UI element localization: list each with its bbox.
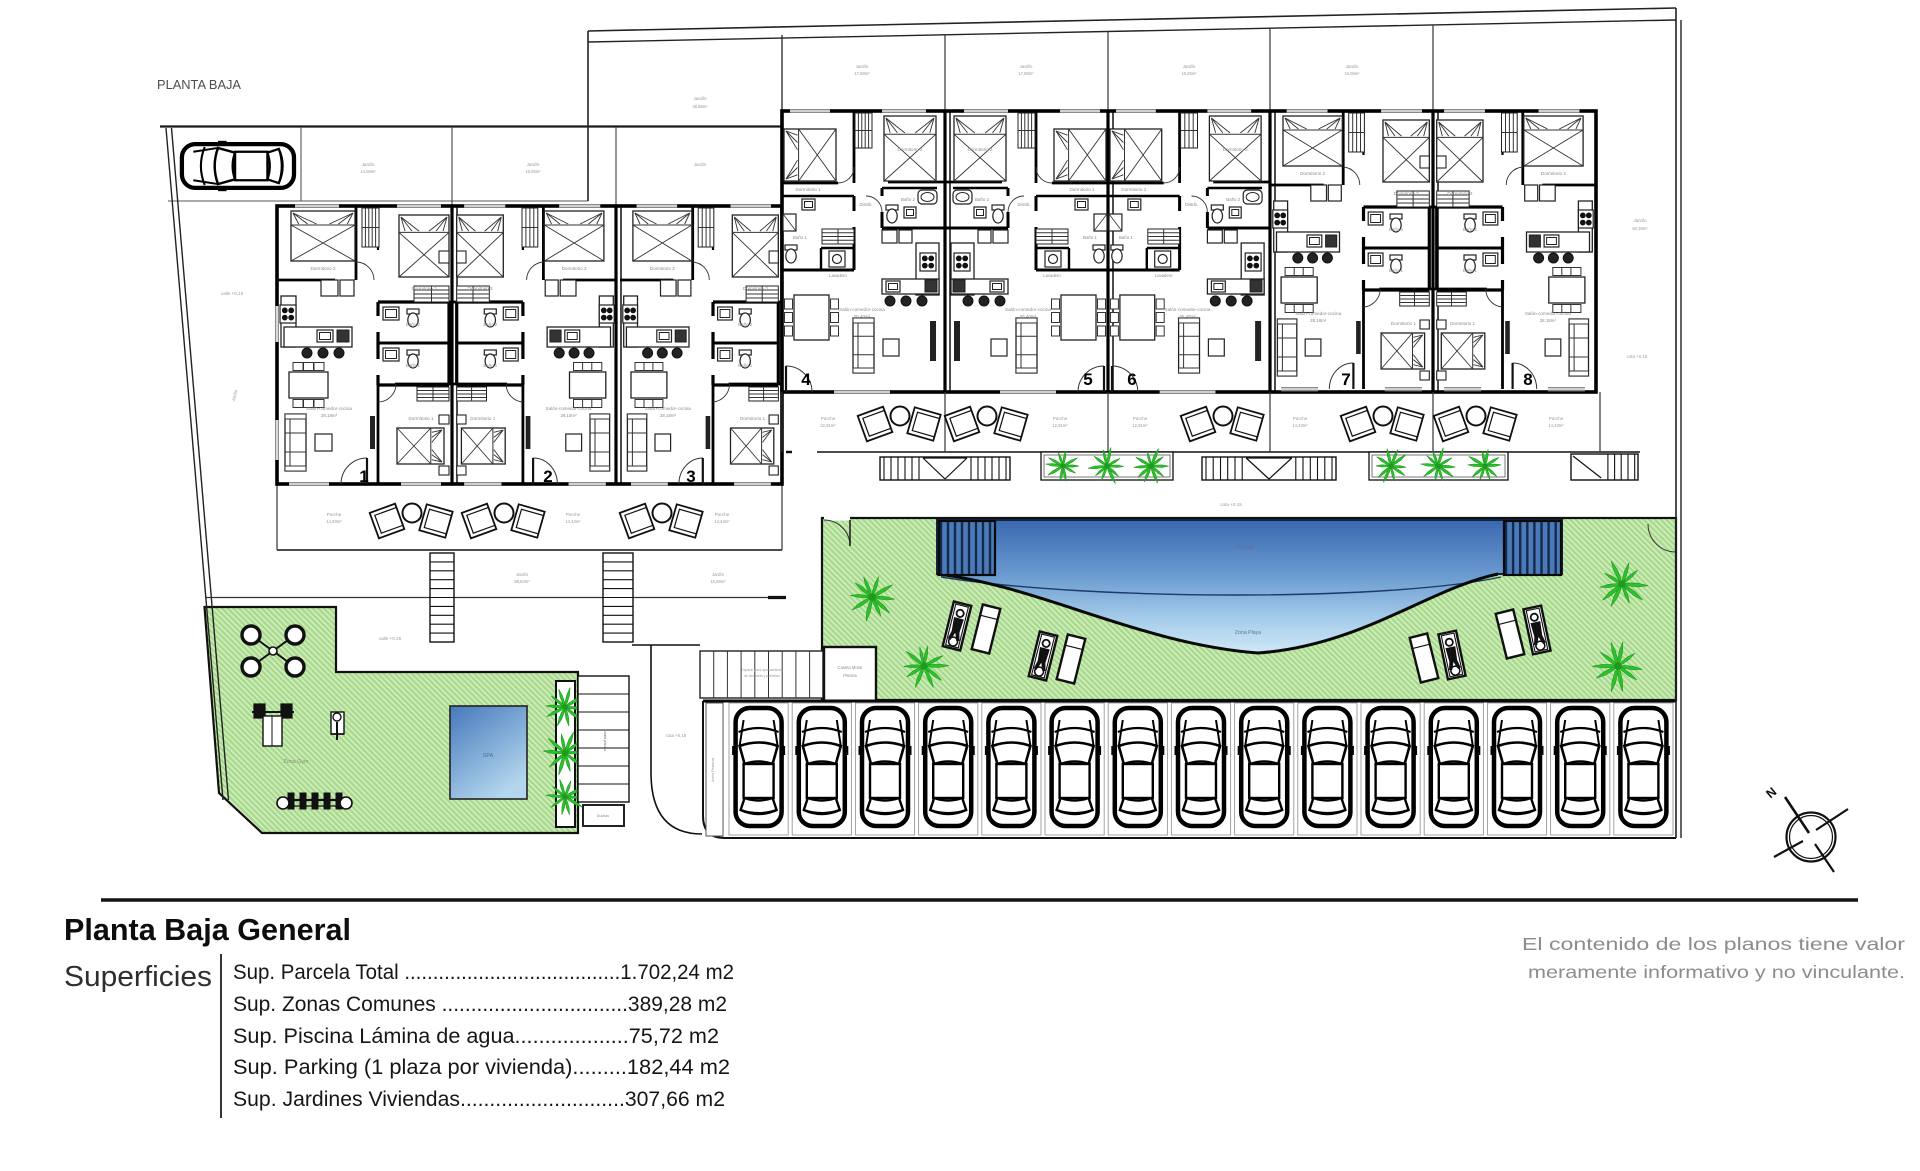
svg-text:Distrib.: Distrib.	[1185, 202, 1198, 207]
svg-text:Salón-comedor-cocina: Salón-comedor-cocina	[546, 406, 592, 411]
svg-text:Caseta Motor: Caseta Motor	[837, 665, 863, 670]
svg-text:17,88m²: 17,88m²	[854, 71, 870, 76]
svg-text:Dormitorio 1: Dormitorio 1	[1450, 321, 1475, 326]
svg-text:calle +0,15: calle +0,15	[379, 636, 402, 641]
svg-text:Sup. Zonas Comunes ...........: Sup. Zonas Comunes .....................…	[233, 992, 727, 1016]
svg-text:Dormitorio 3: Dormitorio 3	[743, 286, 768, 291]
svg-text:Dormitorio 1: Dormitorio 1	[408, 416, 433, 421]
svg-text:Porche: Porche	[327, 512, 342, 517]
svg-text:Baño 1: Baño 1	[1119, 235, 1133, 240]
svg-text:Piscina: Piscina	[843, 673, 857, 678]
svg-text:SPA: SPA	[483, 753, 494, 759]
svg-text:Dormitorio 1: Dormitorio 1	[1391, 321, 1416, 326]
svg-text:Dormitorio 3: Dormitorio 3	[1394, 191, 1419, 196]
svg-text:60,36m²: 60,36m²	[1632, 226, 1648, 231]
svg-text:Jardín: Jardín	[362, 162, 375, 167]
svg-text:16,06m²: 16,06m²	[1181, 71, 1197, 76]
svg-text:14,06m²: 14,06m²	[360, 169, 376, 174]
svg-text:22,91m²: 22,91m²	[820, 423, 836, 428]
svg-text:Salón-comedor-cocina: Salón-comedor-cocina	[645, 406, 691, 411]
svg-text:Dormitorio 1: Dormitorio 1	[740, 416, 765, 421]
svg-text:4: 4	[801, 370, 811, 389]
svg-text:Salón-comedor-cocina: Salón-comedor-cocina	[1525, 311, 1571, 316]
svg-text:Porche: Porche	[1053, 416, 1068, 421]
svg-text:Baño 1: Baño 1	[1389, 268, 1403, 273]
svg-text:Dormitorio 2: Dormitorio 2	[1300, 171, 1325, 176]
svg-text:12,91m²: 12,91m²	[1132, 423, 1148, 428]
svg-text:Baño 2: Baño 2	[738, 322, 752, 327]
svg-text:28,18m²: 28,18m²	[1310, 318, 1327, 323]
svg-text:Baño 1: Baño 1	[793, 235, 807, 240]
svg-text:16,06m²: 16,06m²	[1344, 71, 1360, 76]
svg-text:El contenido de los planos tie: El contenido de los planos tiene valor	[1522, 934, 1905, 954]
svg-text:17,88m²: 17,88m²	[1018, 71, 1034, 76]
svg-text:Dormitorio 1: Dormitorio 1	[470, 416, 495, 421]
svg-text:14,43m²: 14,43m²	[714, 519, 730, 524]
svg-text:Jardín: Jardín	[856, 64, 869, 69]
svg-text:Dormitorio 2: Dormitorio 2	[562, 266, 587, 271]
svg-text:Dormitorio 2: Dormitorio 2	[310, 266, 335, 271]
svg-text:cota +0,15: cota +0,15	[666, 733, 687, 738]
svg-text:Porche: Porche	[715, 512, 730, 517]
svg-text:Dormitorio 2: Dormitorio 2	[897, 147, 922, 152]
svg-text:Duchas: Duchas	[597, 814, 609, 818]
svg-text:cota +0,15: cota +0,15	[1627, 354, 1648, 359]
svg-text:Zona Playa: Zona Playa	[1235, 630, 1261, 636]
svg-text:Planta Baja General: Planta Baja General	[64, 912, 351, 947]
svg-text:2: 2	[543, 467, 552, 486]
svg-text:Lavadero: Lavadero	[1043, 273, 1061, 278]
svg-text:14,43m²: 14,43m²	[1548, 423, 1564, 428]
svg-text:Distrib.: Distrib.	[1017, 202, 1030, 207]
svg-text:Dormitorio 1: Dormitorio 1	[795, 187, 820, 192]
svg-text:Piscina: Piscina	[1237, 545, 1254, 551]
svg-text:28,18m²: 28,18m²	[560, 413, 577, 418]
svg-text:Porche: Porche	[1549, 416, 1564, 421]
svg-text:Porche: Porche	[1293, 416, 1308, 421]
svg-text:3: 3	[686, 467, 695, 486]
svg-text:55,40m²: 55,40m²	[854, 314, 871, 319]
svg-text:Sup. Piscina Lámina de agua...: Sup. Piscina Lámina de agua.............…	[233, 1024, 719, 1048]
svg-text:Superficies: Superficies	[64, 961, 212, 993]
svg-text:Baño 1: Baño 1	[483, 363, 497, 368]
svg-text:Salón-comedor-cocina: Salón-comedor-cocina	[839, 307, 885, 312]
svg-text:Lavadero: Lavadero	[829, 273, 847, 278]
svg-text:Jardín: Jardín	[527, 162, 540, 167]
svg-text:Lavadero: Lavadero	[1155, 273, 1173, 278]
svg-text:88,84m²: 88,84m²	[514, 579, 530, 584]
svg-text:Baño 1: Baño 1	[738, 363, 752, 368]
svg-text:Dormitorio 1: Dormitorio 1	[1069, 187, 1094, 192]
svg-text:Distrib.: Distrib.	[859, 202, 872, 207]
svg-text:Dormitorio 2: Dormitorio 2	[1541, 171, 1566, 176]
svg-text:Baño 1: Baño 1	[1463, 268, 1477, 273]
svg-text:Dormitorio 1: Dormitorio 1	[1121, 187, 1146, 192]
svg-text:Baño 2: Baño 2	[1226, 197, 1240, 202]
svg-text:Jardín: Jardín	[693, 96, 707, 102]
svg-text:14,43m²: 14,43m²	[1292, 423, 1308, 428]
svg-text:Salón-comedor-cocina: Salón-comedor-cocina	[306, 406, 352, 411]
svg-text:16,06m²: 16,06m²	[525, 169, 541, 174]
svg-text:Dormitorio 2: Dormitorio 2	[650, 266, 675, 271]
svg-text:Sup. Parking (1 plaza por vivi: Sup. Parking (1 plaza por vivienda).....…	[233, 1055, 730, 1079]
svg-text:Jardín: Jardín	[694, 162, 707, 167]
svg-text:Zona Gym: Zona Gym	[283, 759, 309, 765]
svg-text:Baño 1: Baño 1	[1083, 235, 1097, 240]
svg-text:Baño 2: Baño 2	[1389, 227, 1403, 232]
svg-text:meramente informativo y no vin: meramente informativo y no vinculante.	[1528, 962, 1905, 982]
svg-text:Baño 2: Baño 2	[901, 197, 915, 202]
svg-text:Salón-comedor-cocina: Salón-comedor-cocina	[1165, 307, 1211, 312]
svg-text:PLANTA BAJA: PLANTA BAJA	[157, 77, 241, 92]
svg-text:Dormitorio 3: Dormitorio 3	[411, 286, 436, 291]
svg-text:Dormitorio 2: Dormitorio 2	[1223, 147, 1248, 152]
svg-text:Porche: Porche	[821, 416, 836, 421]
svg-text:cota +0,15: cota +0,15	[1220, 502, 1242, 507]
svg-text:Jardín: Jardín	[516, 572, 529, 577]
svg-text:Jardín: Jardín	[1020, 64, 1033, 69]
svg-text:7: 7	[1341, 370, 1350, 389]
svg-text:subida piscina: subida piscina	[603, 729, 607, 751]
svg-text:Dormitorio 3: Dormitorio 3	[1447, 191, 1472, 196]
svg-text:28,18m²: 28,18m²	[1540, 318, 1557, 323]
svg-text:Dormitorio 2: Dormitorio 2	[967, 147, 992, 152]
svg-text:de bicicletas y patinetes: de bicicletas y patinetes	[744, 674, 780, 678]
svg-text:Baño 2: Baño 2	[406, 322, 420, 327]
svg-text:14,43m²: 14,43m²	[565, 519, 581, 524]
svg-text:Salón-comedor-cocina: Salón-comedor-cocina	[1005, 307, 1051, 312]
svg-text:calle +0,15: calle +0,15	[221, 291, 244, 296]
svg-text:Baño 2: Baño 2	[483, 322, 497, 327]
svg-text:Baño 2: Baño 2	[1463, 227, 1477, 232]
svg-text:Dormitorio 3: Dormitorio 3	[467, 286, 492, 291]
svg-text:55,40m²: 55,40m²	[1179, 314, 1196, 319]
svg-text:Baño 1: Baño 1	[406, 363, 420, 368]
svg-text:Jardín: Jardín	[1183, 64, 1196, 69]
svg-text:Espacio para aparcamiento: Espacio para aparcamiento	[741, 668, 782, 672]
svg-text:5: 5	[1083, 370, 1092, 389]
svg-text:55,40m²: 55,40m²	[1020, 314, 1037, 319]
svg-text:Porche: Porche	[1133, 416, 1148, 421]
svg-text:Porche: Porche	[566, 512, 581, 517]
svg-text:Sup. Parcela Total ...........: Sup. Parcela Total .....................…	[233, 960, 734, 984]
svg-text:12,91m²: 12,91m²	[1052, 423, 1068, 428]
svg-text:6: 6	[1127, 370, 1136, 389]
svg-text:28,18m²: 28,18m²	[321, 413, 338, 418]
svg-text:Jardín: Jardín	[1346, 64, 1359, 69]
svg-text:8: 8	[1523, 370, 1532, 389]
svg-text:Acera Peatonal: Acera Peatonal	[711, 758, 715, 783]
svg-text:Sup. Jardines Viviendas.......: Sup. Jardines Viviendas.................…	[233, 1087, 725, 1111]
svg-text:28,18m²: 28,18m²	[660, 413, 677, 418]
svg-text:10,88m²: 10,88m²	[710, 579, 726, 584]
svg-text:Jardín: Jardín	[1633, 218, 1647, 224]
svg-text:Salón-comedor-cocina: Salón-comedor-cocina	[1295, 311, 1341, 316]
svg-text:48,86m²: 48,86m²	[692, 104, 708, 109]
svg-text:1: 1	[359, 467, 368, 486]
svg-text:Jardín: Jardín	[712, 572, 725, 577]
svg-text:14,93m²: 14,93m²	[326, 519, 342, 524]
svg-text:Baño 2: Baño 2	[975, 197, 989, 202]
